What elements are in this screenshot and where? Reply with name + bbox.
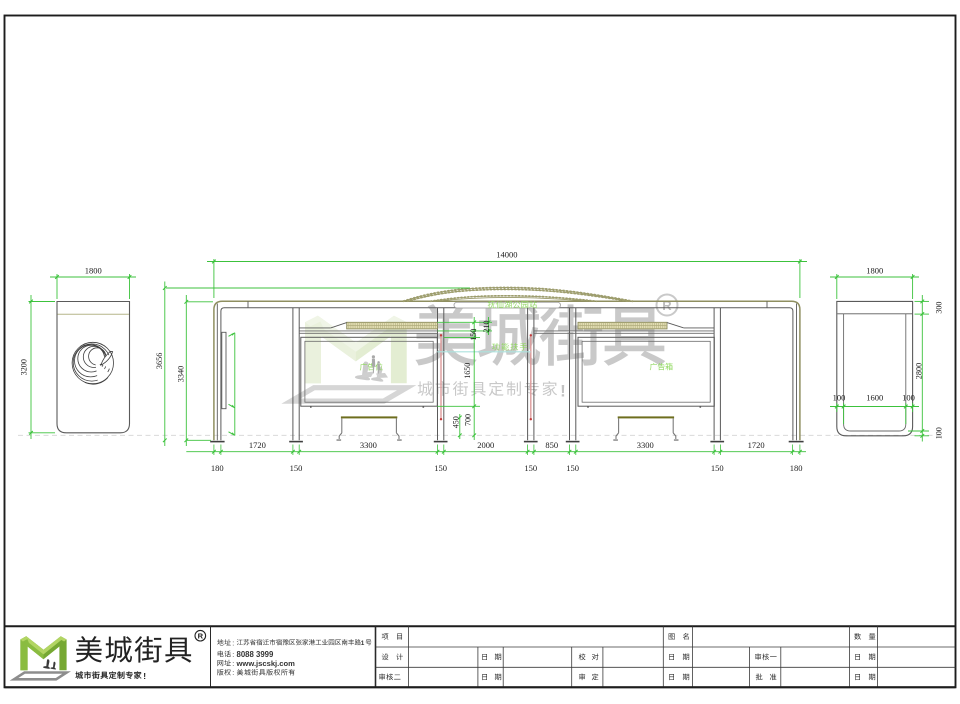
svg-text:180: 180 (790, 463, 803, 473)
svg-text:1: 1 (361, 640, 365, 647)
svg-text:8088 3999: 8088 3999 (237, 650, 275, 659)
svg-text:!: ! (143, 671, 146, 681)
svg-text:700: 700 (464, 414, 473, 426)
svg-text:150: 150 (290, 463, 303, 473)
svg-text:100: 100 (833, 393, 846, 403)
svg-text:www.jscskj.com: www.jscskj.com (236, 659, 296, 668)
svg-text:100: 100 (935, 427, 944, 439)
svg-text::: : (232, 661, 234, 668)
svg-text:150: 150 (469, 329, 478, 341)
svg-text:3300: 3300 (360, 440, 377, 450)
svg-text:!: ! (560, 382, 566, 401)
svg-text:1650: 1650 (463, 363, 472, 379)
svg-text:3300: 3300 (637, 440, 654, 450)
svg-text:3656: 3656 (155, 353, 164, 369)
svg-text:14000: 14000 (496, 250, 517, 260)
svg-text::: : (232, 652, 234, 659)
svg-text:3200: 3200 (20, 359, 29, 375)
svg-text:1800: 1800 (866, 266, 883, 276)
svg-text::: : (232, 670, 234, 677)
svg-text:150: 150 (711, 463, 724, 473)
svg-text:100: 100 (902, 393, 915, 403)
svg-text:1720: 1720 (249, 440, 266, 450)
svg-text::: : (232, 640, 234, 647)
svg-text:3340: 3340 (176, 366, 185, 382)
svg-text:300: 300 (935, 302, 944, 314)
svg-text:R: R (662, 298, 672, 313)
svg-text:2800: 2800 (915, 363, 924, 379)
svg-text:850: 850 (545, 440, 558, 450)
svg-text:2000: 2000 (477, 440, 494, 450)
svg-text:150: 150 (434, 463, 447, 473)
svg-text:1600: 1600 (866, 393, 883, 403)
svg-text:210: 210 (482, 321, 491, 333)
svg-text:1720: 1720 (748, 440, 765, 450)
svg-text:150: 150 (524, 463, 537, 473)
svg-text:180: 180 (211, 463, 224, 473)
svg-text:R: R (198, 632, 204, 641)
svg-text:1800: 1800 (85, 266, 102, 276)
svg-text:150: 150 (566, 463, 579, 473)
svg-text:450: 450 (451, 416, 460, 428)
